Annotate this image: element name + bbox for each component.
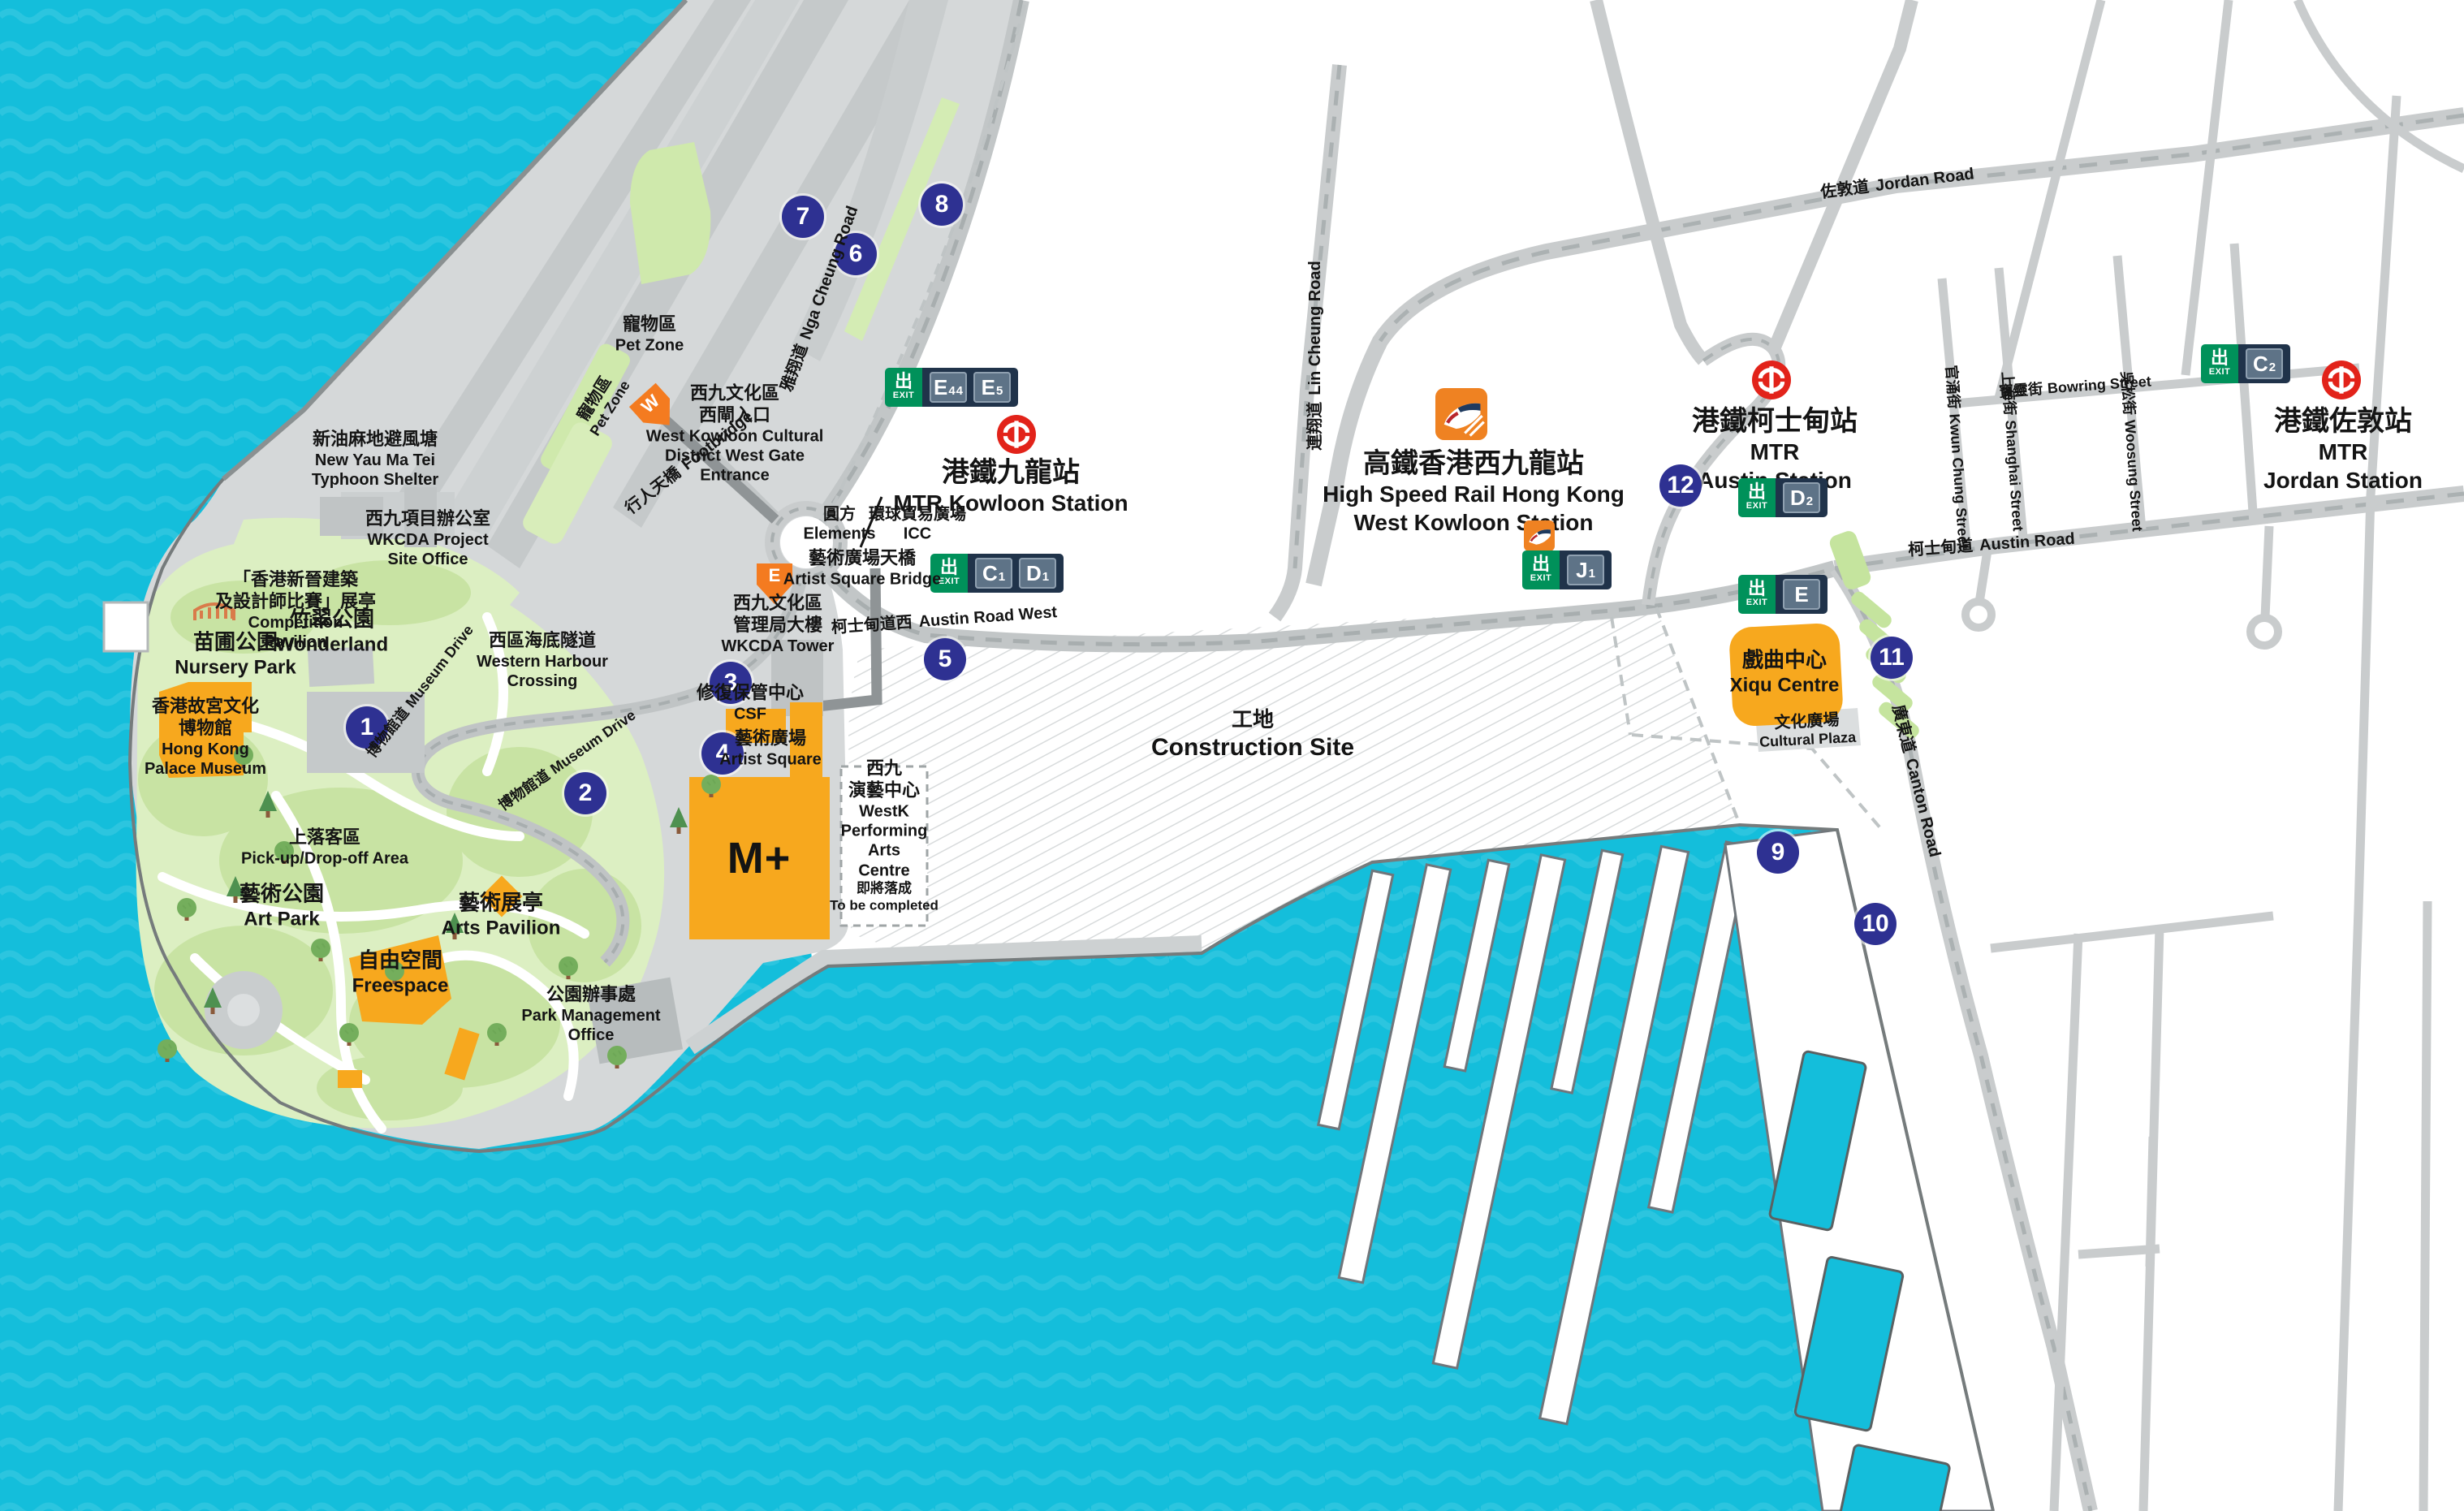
high-speed-rail-icon <box>1435 388 1487 440</box>
exit-icon: 出EXIT <box>1738 575 1776 614</box>
high-speed-rail-exit-icon <box>1524 520 1555 551</box>
exit-icon: 出EXIT <box>930 554 968 593</box>
exit-en: EXIT <box>1530 573 1551 584</box>
exit-zh: 出 <box>940 559 958 576</box>
exit-icon: 出EXIT <box>2201 344 2238 383</box>
exit-en: EXIT <box>1746 598 1767 608</box>
exit-zh: 出 <box>1748 483 1766 501</box>
mtr-logo-jordan-icon <box>2322 360 2361 399</box>
mplus-building <box>689 777 830 939</box>
exit-badge-e: 出EXIT E <box>1738 575 1828 614</box>
map-marker-1: 1 <box>346 706 388 749</box>
exit-code-c2: C2 <box>2246 348 2283 379</box>
exit-code-e5: E5 <box>973 372 1011 403</box>
exit-zh: 出 <box>2211 349 2229 367</box>
map-marker-9: 9 <box>1757 831 1799 874</box>
map-marker-10: 10 <box>1854 903 1897 945</box>
exit-icon: 出EXIT <box>1738 478 1776 517</box>
map-marker-11: 11 <box>1871 637 1913 679</box>
exit-zh: 出 <box>1748 580 1766 598</box>
east-gate-arrow-icon: E <box>753 560 796 607</box>
exit-badge-j1: 出EXIT J1 <box>1522 550 1612 589</box>
east-gate-letter: E <box>753 565 796 586</box>
artist-square-building <box>790 702 822 777</box>
xiqu-centre-building <box>1728 623 1844 727</box>
exit-code-j1: J1 <box>1567 555 1604 585</box>
mtr-logo-kowloon-icon <box>997 415 1036 454</box>
map-marker-7: 7 <box>782 196 824 238</box>
exit-icon: 出EXIT <box>1522 550 1560 589</box>
exit-badge-c1-d1: 出EXIT C1 D1 <box>930 554 1064 593</box>
map-marker-5: 5 <box>924 638 966 680</box>
exit-badge-c2: 出EXIT C2 <box>2201 344 2290 383</box>
exit-code-c1: C1 <box>975 558 1012 589</box>
park-management-office-building <box>587 978 683 1064</box>
exit-en: EXIT <box>2209 367 2230 378</box>
exit-zh: 出 <box>895 373 913 391</box>
map-marker-6: 6 <box>835 233 877 275</box>
map-marker-2: 2 <box>564 772 606 814</box>
exit-code-d2: D2 <box>1783 482 1820 513</box>
exit-badge-d2: 出EXIT D2 <box>1738 478 1828 517</box>
west-kowloon-district-map: 港鐵九龍站 MTR Kowloon Station 高鐵香港西九龍站 High … <box>0 0 2464 1511</box>
mtr-logo-austin-icon <box>1752 360 1791 399</box>
exit-badge-e4-e5: 出EXIT E44 E5 <box>885 368 1018 407</box>
exit-icon: 出EXIT <box>885 368 922 407</box>
westk-pac-site <box>841 766 927 926</box>
competition-pavilion-building <box>104 602 148 651</box>
map-canvas <box>0 0 2464 1511</box>
exit-en: EXIT <box>893 391 914 401</box>
exit-zh: 出 <box>1532 555 1550 573</box>
map-marker-8: 8 <box>921 183 963 226</box>
exit-en: EXIT <box>939 576 960 587</box>
map-marker-3: 3 <box>710 662 752 704</box>
map-marker-4: 4 <box>701 732 744 775</box>
exit-code-e4: E44 <box>930 372 967 403</box>
map-marker-12: 12 <box>1659 464 1702 507</box>
exit-en: EXIT <box>1746 501 1767 512</box>
exit-code-e: E <box>1783 579 1820 610</box>
palace-museum-building <box>159 682 252 778</box>
exit-code-d1: D1 <box>1019 558 1056 589</box>
